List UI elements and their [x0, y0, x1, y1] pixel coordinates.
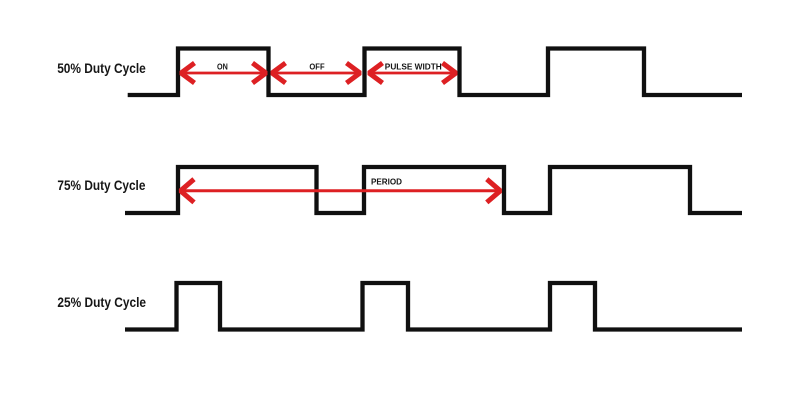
svg-text:PULSE WIDTH: PULSE WIDTH [385, 62, 442, 72]
svg-text:50% Duty Cycle: 50% Duty Cycle [57, 61, 146, 76]
svg-text:PERIOD: PERIOD [371, 177, 402, 187]
svg-text:ON: ON [217, 62, 228, 72]
svg-text:OFF: OFF [309, 62, 324, 72]
svg-text:25% Duty Cycle: 25% Duty Cycle [57, 295, 146, 310]
svg-text:75% Duty Cycle: 75% Duty Cycle [57, 178, 145, 193]
